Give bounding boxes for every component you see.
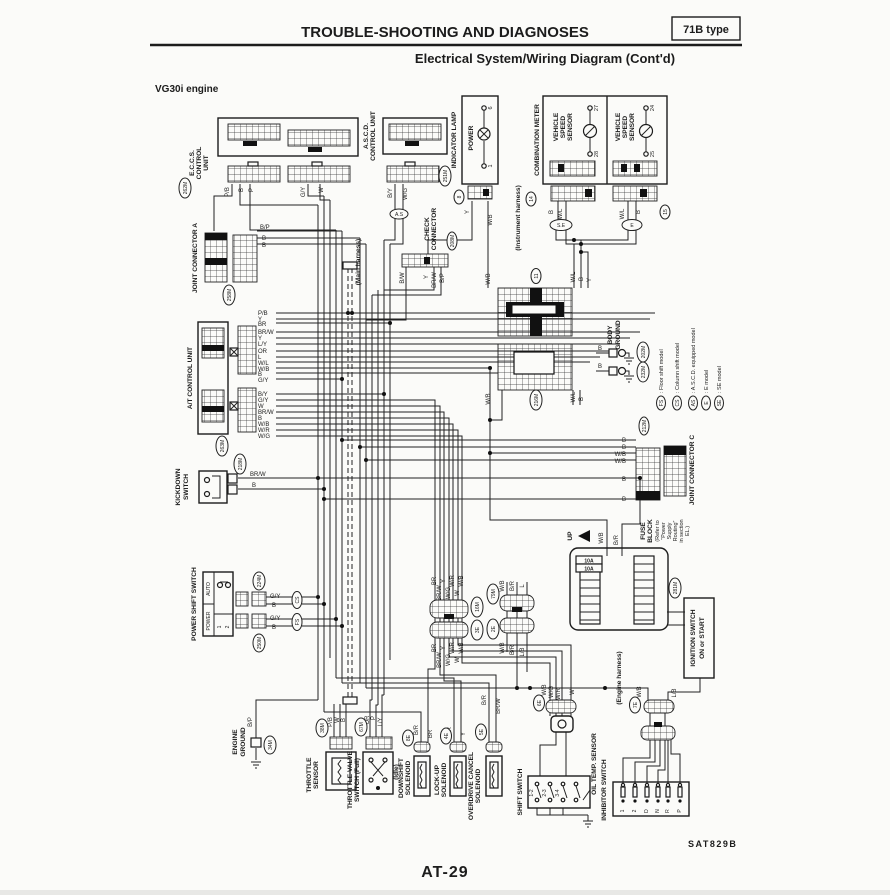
- page-header: TROUBLE-SHOOTING AND DIAGNOSES 71B type …: [150, 17, 742, 95]
- legend-text: : Floor shift model: [659, 349, 665, 393]
- pin-number: 25: [650, 151, 656, 157]
- wire-label: B: [579, 277, 585, 281]
- throttle-sensor-label: THROTTLE: [306, 757, 313, 793]
- terminal-label: P: [677, 809, 683, 813]
- wire-label: W/B: [488, 214, 494, 225]
- wire-label: B: [262, 243, 266, 249]
- eccs-label: CONTROL: [196, 147, 203, 180]
- pin-number: 27: [594, 105, 600, 111]
- kickdown-label: KICKDOWN: [175, 468, 182, 505]
- wire-label: L/B: [520, 647, 526, 656]
- throttle-valve-switch: OR P L/Y 67M THROTTLE VALVE SWITCH (Full…: [347, 715, 400, 809]
- connector-id: 212M: [642, 420, 648, 433]
- connector-id: 15: [663, 209, 669, 215]
- check-connector-label: CHECK: [424, 217, 431, 241]
- wire-label: B: [622, 438, 626, 444]
- harness-label: (Instrument harness): [515, 185, 522, 251]
- harness-connectors-mid: BR BR/W Y W/G W/R W W/B 16M 3E BR BR/W Y…: [430, 575, 534, 668]
- wire-label: W/L: [571, 271, 577, 282]
- at-control-unit: A/T CONTROL UNIT 263M P/B Y BR BR/W Y L/…: [187, 311, 274, 456]
- wire-label: Y: [587, 278, 593, 282]
- terminal-label: 2: [632, 809, 638, 812]
- legend-key: FS: [659, 399, 665, 406]
- connector-id: 5E: [479, 728, 485, 735]
- terminal-label: R: [665, 809, 671, 813]
- solenoid-label: SOLENOID: [475, 769, 482, 804]
- wire-label: BR/W: [432, 272, 438, 288]
- wire-label: W/B: [459, 575, 465, 586]
- connector-id: 262M: [183, 182, 189, 195]
- wire-label: B/P: [248, 717, 254, 727]
- legend-text: : Column shift model: [675, 343, 681, 393]
- wire-label: BR: [258, 322, 267, 328]
- throttle-sensor-label: SENSOR: [313, 761, 320, 789]
- pin-number: 28: [594, 151, 600, 157]
- wire-label: L/B: [672, 688, 678, 697]
- connector-id: 67M: [359, 722, 365, 732]
- connector-id: 7E: [633, 701, 639, 708]
- wire-label: W: [455, 657, 461, 663]
- solenoid-label: SOLENOID: [441, 763, 448, 798]
- overdrive-cancel-solenoid: B/R BR/W 5E OVERDRIVE CANCEL SOLENOID: [468, 694, 502, 820]
- body-ground-label: GROUND: [615, 320, 622, 350]
- wire-label: B: [579, 397, 585, 401]
- wire-label: B: [262, 236, 266, 242]
- kickdown-label: SWITCH: [183, 474, 190, 500]
- page-subtitle: Electrical System/Wiring Diagram (Cont'd…: [415, 51, 675, 66]
- engine-ground: ENGINE GROUND B/P 34M: [232, 717, 276, 768]
- connector-id: 34M: [268, 740, 274, 750]
- wire-label: W/L: [571, 391, 577, 402]
- wire-label: B: [622, 497, 626, 503]
- wire-label: W/B: [500, 642, 506, 653]
- wire-label: W/L: [558, 208, 564, 219]
- eccs-label: E.C.C.S.: [189, 150, 196, 176]
- wire-label: B/R: [614, 534, 620, 545]
- solenoid-label: DOWNSHIFT: [398, 758, 405, 798]
- wire-label: W/R: [450, 642, 456, 654]
- wire-label: B: [598, 346, 602, 352]
- wire-label: P: [249, 188, 255, 192]
- solenoid-label: OVERDRIVE CANCEL: [468, 752, 475, 820]
- wire-label: BR/W: [437, 652, 443, 668]
- wire-label: P: [371, 716, 377, 720]
- harness-label: (Engine harness): [616, 651, 623, 705]
- model-marker: A.S: [395, 212, 404, 218]
- model-marker: FS: [295, 618, 301, 625]
- combination-meter: COMBINATION METER VEHICLE SPEED SENSOR 2…: [515, 96, 670, 251]
- wire-label: BR: [428, 729, 434, 738]
- pin-number: 24: [650, 105, 656, 111]
- figure-code: SAT829B: [688, 839, 737, 849]
- ascd-label: A.S.C.D.: [363, 123, 370, 149]
- wire-label: B/W: [400, 272, 406, 284]
- wire-label: W/G: [446, 587, 452, 599]
- connector-id: 216M: [534, 394, 540, 407]
- engine-ground-label: ENGINE: [232, 729, 239, 755]
- jcc-label: JOINT CONNECTOR C: [689, 435, 696, 505]
- wire-label: B: [272, 625, 276, 631]
- connector-id: 38M: [320, 723, 326, 733]
- page-number: AT-29: [421, 864, 468, 881]
- connector-id: 8E: [406, 734, 412, 741]
- ascd-control-unit: A.S.C.D. CONTROL UNIT 251M B/Y W/G A.S: [363, 111, 451, 219]
- legend-text: : E model: [704, 370, 710, 393]
- ascd-label: CONTROL UNIT: [370, 111, 377, 161]
- terminal-label: 1: [620, 809, 626, 812]
- pss-label: POWER SHIFT SWITCH: [191, 567, 198, 641]
- ignition-switch: IGNITION SWITCH ON or START: [684, 598, 714, 678]
- wire-label: W/R: [556, 688, 562, 700]
- vss-label: SPEED: [622, 116, 629, 139]
- wire-label: Y: [441, 646, 447, 650]
- wire-label: B/R: [482, 694, 488, 705]
- wire-label: W/L: [620, 208, 626, 219]
- wire-label: W/B: [637, 686, 643, 697]
- wire-label: W/G: [446, 654, 452, 666]
- pss-row: 2: [225, 625, 231, 628]
- legend-key: CS: [675, 399, 681, 407]
- wire-label: W: [319, 187, 325, 193]
- wire-label: L/Y: [378, 717, 384, 726]
- wire-label: P/B: [225, 187, 231, 197]
- wire-label: B: [622, 477, 626, 483]
- fuse-caption: EL.): [685, 526, 691, 536]
- wire-label: W/R: [450, 575, 456, 587]
- wire-label: G/Y: [270, 616, 280, 622]
- inhibitor-terminals: 1 2 D N R P: [620, 783, 683, 812]
- fuse-block: UP W/B B/R 10A 10A 281M FUSE BLOCK (Refe…: [567, 519, 691, 630]
- vss-label: SENSOR: [629, 113, 636, 141]
- connector-id: 8: [457, 195, 463, 198]
- connector-id: 6E: [537, 699, 543, 706]
- connector-id: 4E: [444, 732, 450, 739]
- vss-label: VEHICLE: [615, 112, 622, 141]
- inhibitor-switch: (Engine harness) W/B L/B 7E INHIBITOR SW…: [601, 651, 689, 820]
- connector-id: 251M: [443, 170, 449, 183]
- wire-label: W/B: [615, 459, 626, 465]
- connector-id: 3E: [475, 626, 481, 633]
- ignition-label: ON or START: [699, 617, 706, 659]
- wire-label: W/B: [542, 684, 548, 695]
- wire-label: B/P: [260, 225, 270, 231]
- jca-label: JOINT CONNECTOR A: [192, 223, 199, 293]
- model-marker: S.E: [557, 223, 566, 229]
- legend-text: : SE model: [717, 366, 723, 393]
- power-shift-switch: POWER SHIFT SWITCH AUTO POWER 1 2 224M 2…: [191, 567, 302, 652]
- wire-label: L: [520, 584, 526, 588]
- wire-label: B/R: [414, 724, 420, 735]
- wire-label: W: [570, 689, 576, 695]
- wire-label: W/B: [500, 580, 506, 591]
- combination-meter-label: COMBINATION METER: [534, 104, 541, 176]
- wire-label: G/Y: [258, 378, 268, 384]
- vss-label: SENSOR: [567, 113, 574, 141]
- kickdown-switch: KICKDOWN SWITCH 218M BR/W B: [175, 454, 266, 506]
- pin-number: 6: [488, 106, 494, 109]
- connector-id: 258M: [227, 289, 233, 302]
- fuse-caption: FUSE: [640, 522, 647, 540]
- lockup-solenoid: B/R Y 4E LOCK-UP SOLENOID: [434, 726, 467, 797]
- pin-number: 1: [488, 164, 494, 167]
- wire-label: B: [636, 210, 642, 214]
- up-arrow-icon: [578, 530, 590, 542]
- oil-temp-label: OIL TEMP. SENSOR: [591, 733, 598, 795]
- shift-switch: SHIFT SWITCH 1-2 2-3 3-4: [517, 768, 590, 815]
- wire-label: W/G: [549, 686, 555, 698]
- wire-label: G/Y: [301, 187, 307, 197]
- fuse-caption: BLOCK: [647, 519, 654, 543]
- connector-id: 250M: [257, 637, 263, 650]
- joint-connector-c: JOINT CONNECTOR C 212M B B W/B W/B B B: [615, 417, 696, 505]
- wire-label: B: [252, 483, 256, 489]
- gear-contact-label: 3-4: [555, 789, 561, 796]
- terminal-label: D: [644, 809, 650, 813]
- up-label: UP: [567, 531, 574, 541]
- page-footer: SAT829B AT-29: [421, 839, 737, 881]
- legend-key: AS: [691, 399, 697, 406]
- eccs-control-unit: E.C.C.S. CONTROL UNIT 262M P/B B P G/Y W: [179, 118, 358, 198]
- connector-id: 224M: [257, 575, 263, 588]
- connector-id: 16M: [475, 602, 481, 612]
- gear-contact-label: 1-2: [529, 789, 535, 796]
- manual-page: TROUBLE-SHOOTING AND DIAGNOSES 71B type …: [0, 0, 890, 890]
- inhibitor-label: INHIBITOR SWITCH: [601, 759, 608, 821]
- wire-label: W/B: [486, 273, 492, 284]
- wire-label: P/B: [328, 717, 334, 727]
- type-badge: 71B type: [683, 24, 729, 36]
- wire-label: W/B: [615, 452, 626, 458]
- wire-label: Y: [465, 210, 471, 214]
- legend-text: : A.S.C.D. equipped model: [691, 328, 697, 393]
- connector-id: 263M: [220, 440, 226, 453]
- wire-label: B/R: [510, 644, 516, 655]
- wire-label: B: [622, 445, 626, 451]
- wire-label: Y: [424, 275, 430, 279]
- connector-id: 2E: [491, 625, 497, 632]
- atcu-label: A/T CONTROL UNIT: [187, 347, 194, 409]
- pss-row: 1: [217, 625, 223, 628]
- wiring: [214, 184, 700, 827]
- model-marker: CS: [295, 596, 301, 604]
- connector-id: 202M: [641, 346, 647, 359]
- wire-label: B: [341, 718, 347, 722]
- connector-id: 281M: [673, 582, 679, 595]
- wire-label: BR: [432, 576, 438, 585]
- solenoid-label: SOLENOID: [405, 761, 412, 796]
- connector-id: 232M: [641, 366, 647, 379]
- wiring-diagram: TROUBLE-SHOOTING AND DIAGNOSES 71B type …: [0, 0, 890, 890]
- wire-label: BR/W: [496, 698, 502, 714]
- indicator-lamp: INDICATOR LAMP POWER 6 1 8 Y W/B: [451, 96, 498, 226]
- ignition-label: IGNITION SWITCH: [690, 609, 697, 666]
- wire-label: B/P: [440, 273, 446, 283]
- wire-label: BR/W: [250, 472, 266, 478]
- legend-key: SE: [717, 399, 723, 406]
- indicator-lamp-label: INDICATOR LAMP: [451, 111, 458, 168]
- wire-label: W/B: [486, 393, 492, 404]
- body-ground-label: BODY: [607, 325, 614, 345]
- wire-label: BR/W: [437, 585, 443, 601]
- vss-label: VEHICLE: [553, 112, 560, 141]
- wire-label: G/Y: [270, 594, 280, 600]
- terminal-label: N: [655, 809, 661, 813]
- solenoid-label: LOCK-UP: [434, 764, 441, 795]
- vss-label: SPEED: [560, 116, 567, 139]
- shift-switch-label: SHIFT SWITCH: [517, 768, 524, 815]
- wire-label: B: [239, 188, 245, 192]
- pss-mode: AUTO: [206, 582, 212, 596]
- connector-id: 11: [534, 273, 540, 278]
- engine-ground-label: GROUND: [240, 727, 247, 757]
- wire-label: BR: [432, 643, 438, 652]
- wire-label: Y: [441, 579, 447, 583]
- connector-id: 208M: [450, 235, 456, 248]
- wire-label: Y: [461, 732, 467, 736]
- page-title: TROUBLE-SHOOTING AND DIAGNOSES: [301, 24, 589, 41]
- wire-label: W/G: [258, 434, 270, 440]
- shield-terminal: [343, 697, 357, 704]
- wire-label: B: [549, 210, 555, 214]
- wire-label: L/Y: [258, 342, 267, 348]
- wire-label: B: [272, 603, 276, 609]
- connector-id: 218M: [238, 458, 244, 471]
- connector-id: 14: [529, 196, 535, 202]
- harness-label: (Main harness): [355, 239, 362, 286]
- wire-label: B/Y: [388, 188, 394, 198]
- wire-label: W/G: [403, 188, 409, 200]
- pss-mode: POWER: [206, 611, 212, 630]
- harness-connector-11: W/B W/L B Y 11 216M W/B W/L B: [486, 269, 593, 411]
- engine-label: VG30i engine: [155, 84, 219, 95]
- tvs-label: THROTTLE VALVE: [347, 750, 354, 809]
- wire-label: W/B: [459, 642, 465, 653]
- power-lamp-label: POWER: [468, 125, 475, 150]
- tvs-label: SWITCH (Full): [354, 758, 361, 802]
- gear-contact-label: 2-3: [542, 789, 548, 796]
- connector-id: 79M: [491, 589, 497, 599]
- check-connector-label: CONNECTOR: [431, 208, 438, 251]
- wire-label: W/B: [599, 532, 605, 543]
- wire-label: W: [455, 590, 461, 596]
- wire-label: B: [598, 364, 602, 370]
- eccs-label: UNIT: [203, 155, 210, 170]
- downshift-solenoid: B/R BR 8E DOWNSHIFT SOLENOID: [398, 724, 434, 798]
- model-legend: FS : Floor shift model CS : Column shift…: [657, 328, 724, 410]
- wire-label: B/R: [510, 580, 516, 591]
